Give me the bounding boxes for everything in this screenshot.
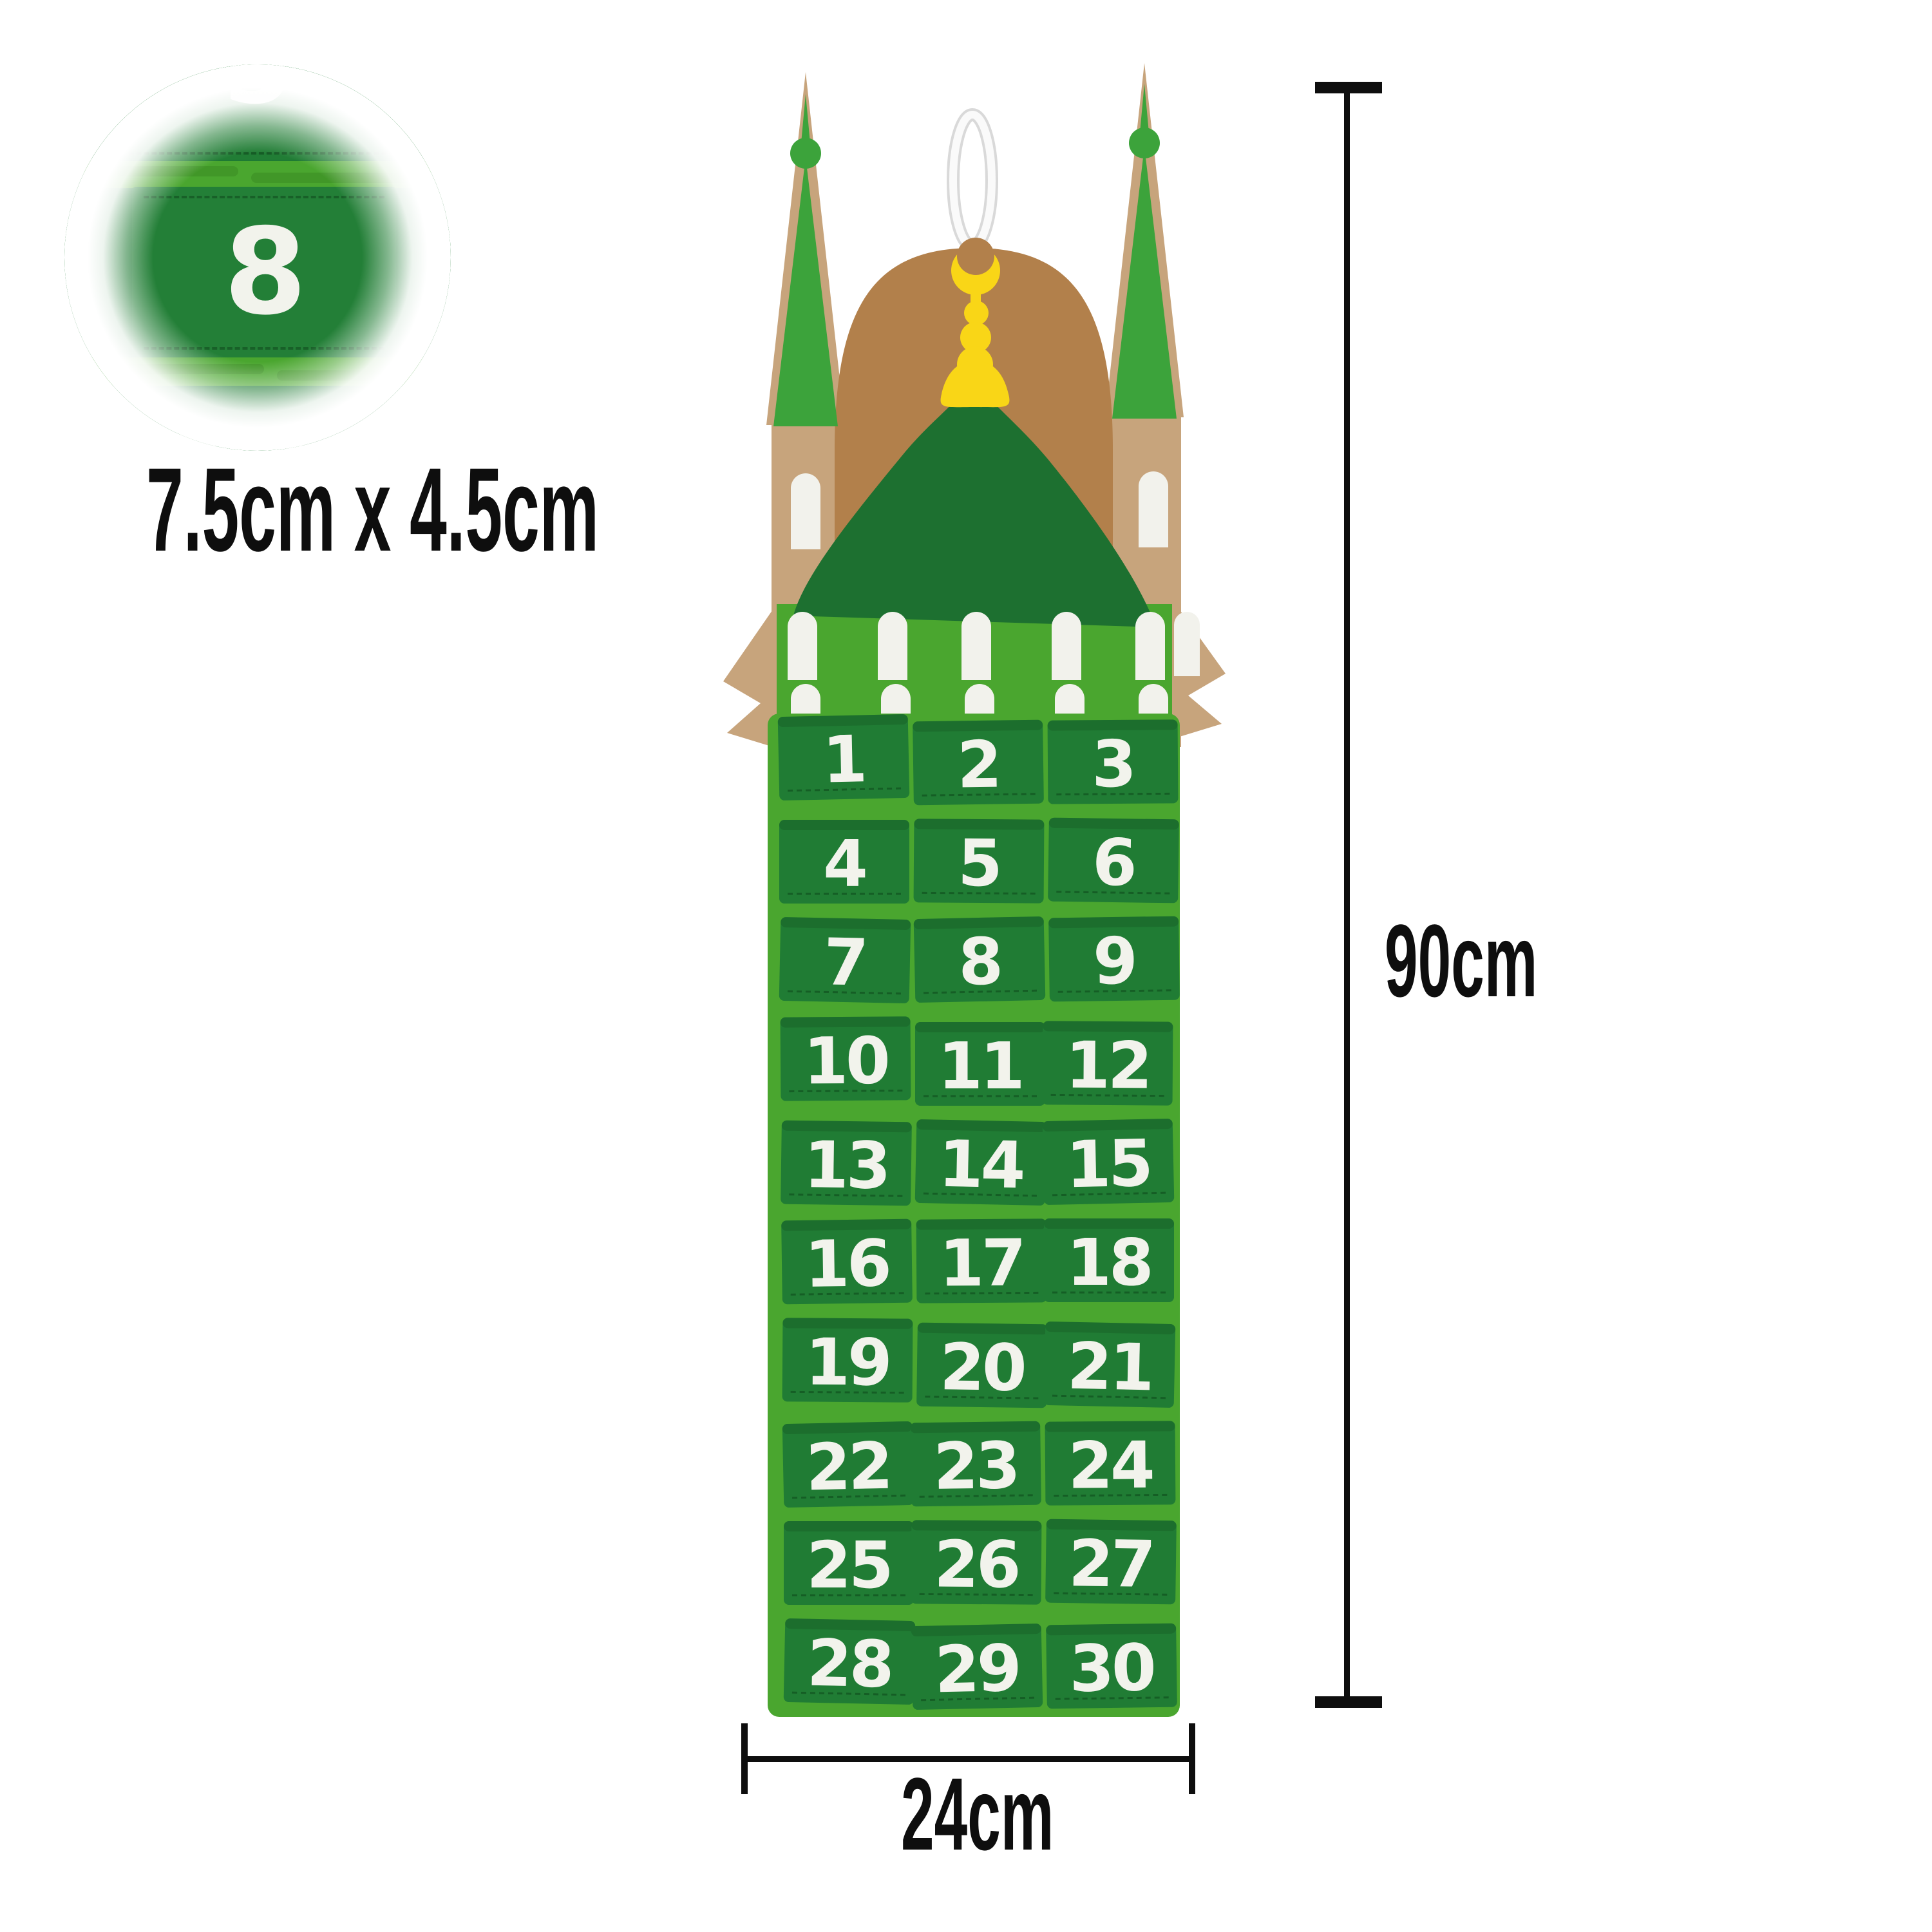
pocket-number: 21 (1066, 1329, 1153, 1406)
vignette-fade (64, 64, 451, 451)
pocket: 21 (1044, 1321, 1176, 1408)
pocket-number: 13 (804, 1127, 889, 1204)
right-minaret-spire (1112, 84, 1177, 419)
pocket: 7 (779, 917, 911, 1003)
pocket-number: 22 (805, 1428, 891, 1506)
height-dimension-line (1344, 91, 1350, 1698)
arch-window (961, 612, 991, 680)
arch-window (788, 612, 817, 680)
height-dimension-bottom-cap (1315, 1696, 1382, 1708)
pocket: 10 (781, 1016, 911, 1101)
pocket-number: 14 (938, 1126, 1024, 1204)
arch-window (1135, 612, 1165, 680)
arch-window (791, 473, 820, 549)
pocket-number: 2 (956, 727, 999, 803)
product-dimension-image: 5 8 11 7.5cm x 4.5cm (0, 0, 1932, 1932)
arch-window (878, 612, 907, 680)
pocket-number: 20 (940, 1329, 1025, 1406)
pocket: 6 (1048, 818, 1179, 904)
pocket: 3 (1048, 719, 1179, 804)
pocket-number: 25 (806, 1528, 891, 1603)
pocket: 2 (913, 720, 1044, 806)
left-minaret-spire (773, 94, 838, 426)
pocket: 19 (782, 1318, 913, 1402)
pocket: 20 (916, 1323, 1048, 1408)
pocket: 27 (1045, 1519, 1177, 1605)
pocket-number: 18 (1066, 1225, 1151, 1300)
pocket: 26 (911, 1520, 1042, 1604)
hanging-ribbon-loop (953, 115, 992, 246)
pocket-number: 5 (958, 826, 1000, 901)
pocket-number: 28 (806, 1625, 893, 1703)
height-dimension-label: 90cm (1385, 909, 1537, 1012)
width-dimension-label: 24cm (901, 1763, 1050, 1866)
arch-window (1174, 612, 1200, 676)
pocket: 29 (911, 1624, 1043, 1710)
pocket-number: 1 (822, 721, 866, 797)
pocket: 30 (1046, 1624, 1177, 1709)
pocket-number: 30 (1069, 1630, 1155, 1707)
pocket-number: 27 (1068, 1526, 1154, 1602)
detail-zoom-circle: 5 8 11 (64, 64, 451, 451)
pocket-number: 3 (1092, 726, 1134, 802)
pocket: 23 (910, 1421, 1041, 1507)
pocket: 17 (916, 1218, 1047, 1303)
pocket: 14 (915, 1119, 1047, 1206)
pocket-number: 9 (1092, 923, 1135, 999)
pocket-number: 29 (934, 1631, 1020, 1708)
pocket-number: 8 (958, 923, 1001, 999)
pocket-size-label: 7.5cm x 4.5cm (146, 451, 421, 570)
pocket-number: 4 (823, 826, 866, 902)
pocket: 18 (1044, 1218, 1174, 1302)
pocket: 25 (784, 1521, 914, 1605)
width-dimension-right-tick (1189, 1723, 1195, 1794)
pocket-number: 6 (1092, 825, 1135, 901)
pocket: 13 (781, 1121, 912, 1206)
pocket: 12 (1043, 1021, 1173, 1105)
pocket: 15 (1043, 1119, 1175, 1205)
pocket-number: 10 (803, 1023, 888, 1099)
pocket: 4 (779, 820, 909, 904)
arch-window (1052, 612, 1081, 680)
pocket-number: 17 (939, 1226, 1024, 1302)
felt-mosque-calendar: 1234567891011121314151617181920212223242… (676, 52, 1294, 1758)
pocket-number: 16 (804, 1226, 890, 1302)
pocket: 8 (914, 916, 1046, 1003)
pocket: 16 (781, 1219, 913, 1305)
pocket-number: 23 (933, 1428, 1019, 1504)
arch-window (1139, 471, 1168, 547)
pocket-number: 24 (1068, 1428, 1153, 1504)
pocket-number: 26 (934, 1527, 1019, 1603)
pocket: 11 (915, 1022, 1045, 1106)
pocket: 22 (782, 1421, 914, 1508)
pocket-number: 7 (823, 924, 867, 1000)
pocket: 9 (1048, 916, 1180, 1002)
pocket: 5 (914, 819, 1045, 903)
pocket: 28 (784, 1618, 916, 1705)
pocket-number: 15 (1065, 1126, 1151, 1203)
pocket-number: 11 (938, 1028, 1022, 1104)
pocket: 1 (778, 714, 910, 800)
pocket: 24 (1045, 1421, 1176, 1505)
pocket-number: 19 (805, 1325, 890, 1401)
pocket-number: 12 (1065, 1028, 1150, 1104)
